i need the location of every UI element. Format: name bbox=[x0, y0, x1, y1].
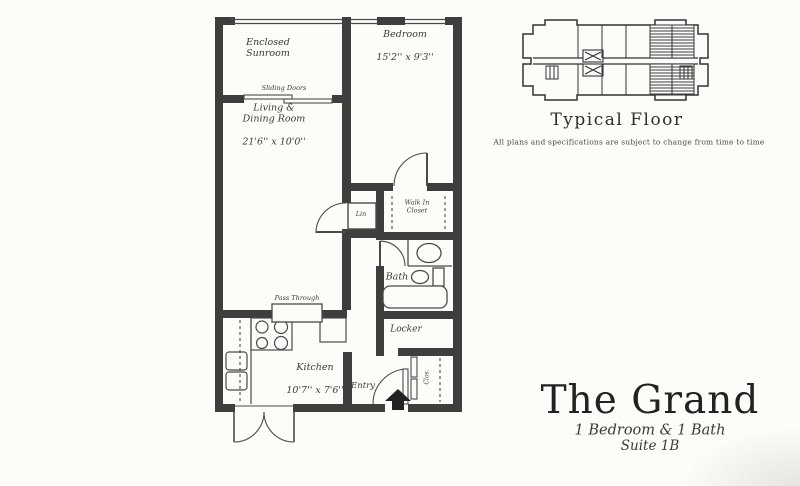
locker-label: Locker bbox=[390, 325, 422, 336]
suite-title: The Grand bbox=[541, 378, 760, 424]
suite-location-hatch bbox=[650, 25, 694, 95]
corridor-lines bbox=[533, 58, 698, 64]
entry-closet-label: Clos. bbox=[423, 369, 430, 384]
living-dining-name: Living & Dining Room bbox=[242, 103, 305, 125]
plans-disclaimer: All plans and specifications are subject… bbox=[493, 139, 764, 148]
floor-plan-sheet: Enclosed Sunroom Bedroom 15'2'' x 9'3'' … bbox=[0, 0, 800, 486]
suite-number: Suite 1B bbox=[621, 439, 679, 455]
bath-sink bbox=[412, 271, 429, 284]
suite-subtitle: 1 Bedroom & 1 Bath bbox=[575, 422, 726, 439]
linen-label: Lin bbox=[356, 211, 367, 219]
toilet bbox=[417, 244, 441, 263]
typical-floor-caption: Typical Floor bbox=[550, 110, 683, 130]
kitchen-label: Kitchen 10'7'' x 7'6'' bbox=[286, 351, 343, 407]
elevators bbox=[583, 50, 603, 76]
bedroom-name: Bedroom bbox=[376, 29, 433, 40]
vanity bbox=[433, 268, 444, 286]
stove bbox=[251, 318, 292, 350]
bedroom-label: Bedroom 15'2'' x 9'3'' bbox=[376, 18, 433, 74]
bifold-doors bbox=[411, 357, 417, 399]
bath-label: Bath bbox=[386, 271, 409, 282]
pass-through-counter bbox=[272, 304, 322, 322]
bathtub bbox=[383, 286, 447, 308]
pass-through-label: Pass Through bbox=[275, 295, 320, 303]
kitchen-name: Kitchen bbox=[286, 362, 343, 373]
kitchen-dims: 10'7'' x 7'6'' bbox=[286, 385, 343, 396]
living-dining-label: Living & Dining Room 21'6'' x 10'0'' bbox=[242, 91, 305, 158]
typical-floor-plan bbox=[523, 20, 708, 100]
entry-label: Entry bbox=[351, 381, 375, 391]
bedroom-dims: 15'2'' x 9'3'' bbox=[376, 52, 433, 63]
living-dining-dims: 21'6'' x 10'0'' bbox=[242, 136, 305, 147]
dishwasher bbox=[320, 318, 346, 342]
sunroom-label: Enclosed Sunroom bbox=[246, 37, 290, 59]
walk-in-closet-label: Walk In Closet bbox=[405, 199, 430, 214]
kitchen-sink bbox=[226, 352, 247, 390]
